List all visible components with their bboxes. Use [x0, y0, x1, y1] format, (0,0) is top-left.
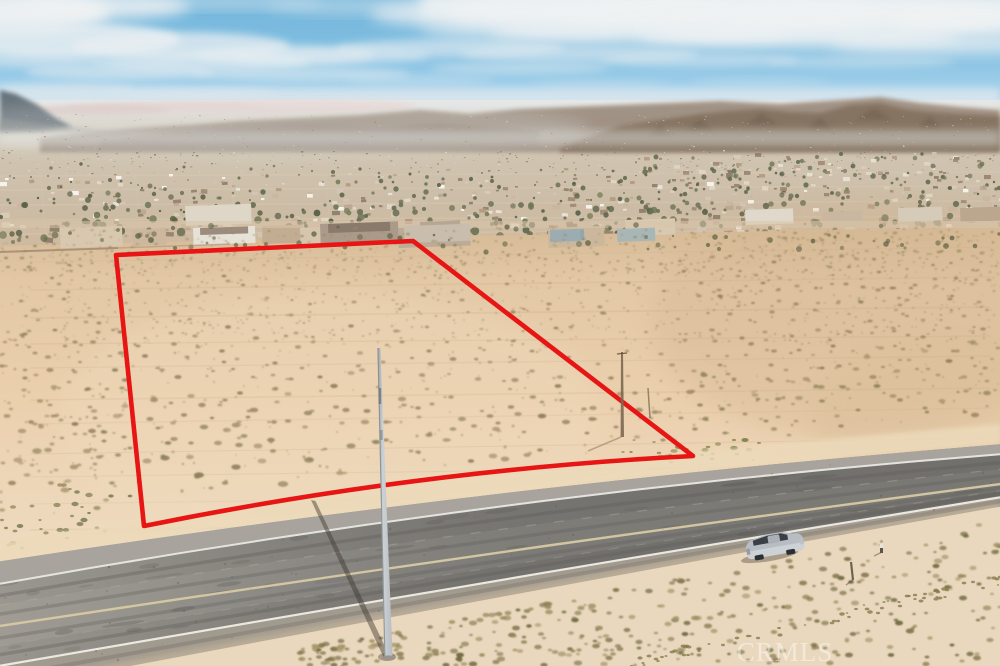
svg-text:CRMLS: CRMLS [737, 637, 834, 666]
